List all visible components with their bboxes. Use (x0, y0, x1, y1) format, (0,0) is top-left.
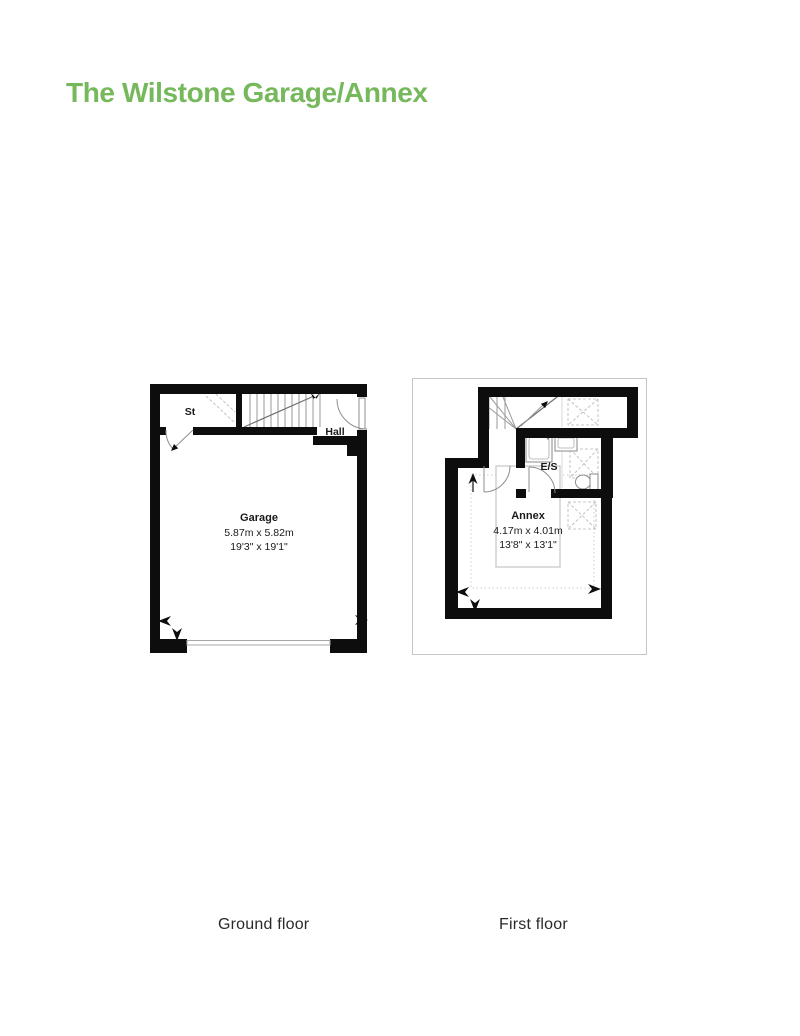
first-floor-plan: E/S Annex 4.17m x 4.01m 13'8" x 13'1" (405, 372, 653, 660)
dimension-arrows (158, 615, 368, 641)
st-label: St (185, 406, 196, 418)
ground-floor-caption: Ground floor (218, 916, 309, 934)
first-floor-caption: First floor (499, 916, 568, 934)
st-door (166, 430, 193, 451)
garage-imperial-dimensions: 19'3" x 19'1" (230, 541, 288, 553)
ensuite-label: E/S (541, 461, 558, 473)
staircase (483, 397, 557, 429)
stairs-up-arrow (469, 473, 478, 492)
toilet-icon (576, 474, 599, 490)
floorplan-page: The Wilstone Garage/Annex (0, 0, 800, 1036)
shower-icon (526, 434, 552, 462)
hall-entrance-door (337, 398, 367, 429)
garage-label: Garage (240, 512, 278, 524)
garage-door (187, 641, 330, 646)
annex-imperial-dimensions: 13'8" x 13'1" (499, 539, 557, 551)
annex-metric-dimensions: 4.17m x 4.01m (493, 525, 563, 537)
annex-label: Annex (511, 510, 546, 522)
garage-metric-dimensions: 5.87m x 5.82m (224, 527, 294, 539)
hall-label: Hall (325, 426, 344, 438)
ground-floor-plan: St Hall Garage 5.87m x 5.82m 19'3" x 19'… (145, 380, 375, 658)
staircase (244, 393, 320, 427)
understair-dashed-lines (206, 394, 235, 423)
page-title: The Wilstone Garage/Annex (66, 77, 428, 109)
